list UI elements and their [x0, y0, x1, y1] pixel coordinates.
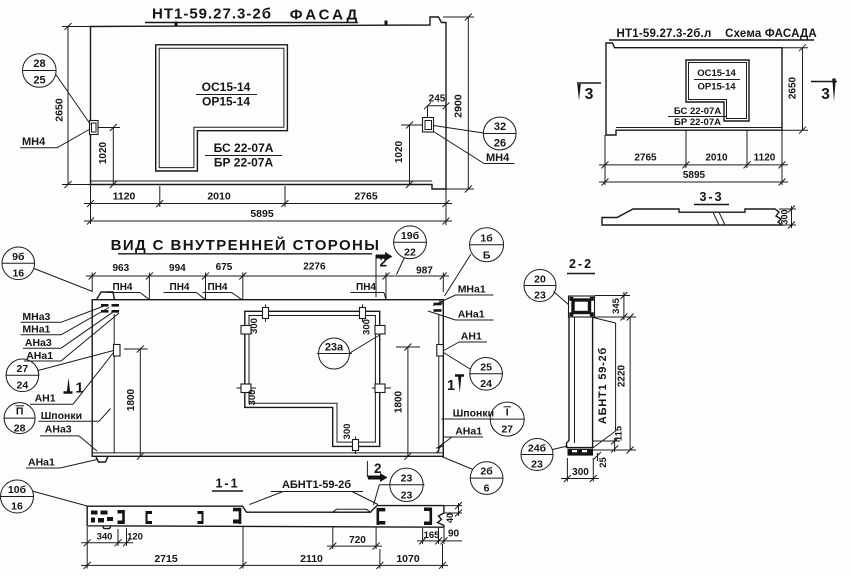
svg-text:НТ1-59.27.3-2б.л: НТ1-59.27.3-2б.л: [617, 28, 712, 40]
svg-text:АНа3: АНа3: [25, 337, 52, 349]
svg-text:675: 675: [216, 262, 233, 273]
svg-text:1б: 1б: [480, 233, 493, 245]
svg-text:300: 300: [362, 319, 373, 335]
svg-text:2765: 2765: [354, 191, 378, 203]
svg-text:2: 2: [380, 255, 388, 270]
svg-text:ОР15-14: ОР15-14: [697, 82, 736, 93]
svg-text:2900: 2900: [453, 94, 465, 118]
svg-text:24: 24: [480, 378, 492, 390]
svg-text:24б: 24б: [528, 443, 547, 455]
svg-text:ОС15-14: ОС15-14: [697, 68, 736, 79]
svg-text:1120: 1120: [113, 191, 136, 203]
svg-text:27: 27: [501, 424, 513, 436]
svg-text:23а: 23а: [325, 342, 344, 354]
svg-text:5895: 5895: [683, 170, 706, 181]
svg-text:120: 120: [127, 532, 143, 543]
svg-text:994: 994: [169, 263, 186, 274]
svg-text:23: 23: [531, 459, 543, 471]
svg-text:25: 25: [598, 457, 609, 468]
svg-text:24: 24: [17, 380, 29, 392]
svg-text:ВИД С ВНУТРЕННЕЙ СТОРОНЫ: ВИД С ВНУТРЕННЕЙ СТОРОНЫ: [111, 236, 381, 254]
svg-text:МН4: МН4: [22, 136, 46, 148]
svg-text:АНа1: АНа1: [26, 350, 53, 362]
svg-text:300: 300: [342, 424, 353, 440]
svg-text:2650: 2650: [54, 98, 66, 122]
svg-text:25: 25: [480, 362, 492, 374]
svg-text:МНа1: МНа1: [458, 284, 486, 296]
svg-text:1800: 1800: [126, 388, 137, 411]
svg-text:300: 300: [572, 467, 589, 478]
svg-text:16: 16: [11, 501, 23, 513]
svg-text:БР 22-07А: БР 22-07А: [214, 156, 274, 170]
svg-text:28: 28: [14, 423, 26, 435]
svg-text:АБНТ1 59-2б: АБНТ1 59-2б: [597, 347, 609, 424]
svg-text:ПН4: ПН4: [170, 282, 190, 293]
svg-text:ОС15-14: ОС15-14: [202, 80, 251, 94]
svg-text:2220: 2220: [617, 364, 628, 387]
svg-text:АНа1: АНа1: [455, 426, 482, 438]
svg-text:165: 165: [424, 530, 441, 541]
svg-text:300: 300: [247, 390, 258, 406]
svg-text:23: 23: [401, 490, 413, 502]
svg-text:АНа1: АНа1: [28, 457, 55, 469]
svg-text:2: 2: [374, 461, 382, 476]
svg-text:6: 6: [484, 483, 490, 495]
svg-text:2276: 2276: [303, 262, 326, 273]
svg-text:9б: 9б: [12, 251, 25, 263]
svg-text:ПН4: ПН4: [356, 282, 376, 293]
svg-text:340: 340: [97, 532, 113, 543]
svg-text:1: 1: [76, 381, 84, 397]
svg-text:ПН4: ПН4: [208, 282, 228, 293]
svg-text:345: 345: [611, 297, 622, 314]
svg-text:5895: 5895: [250, 208, 274, 220]
svg-text:32: 32: [494, 121, 506, 133]
svg-text:Схема ФАСАДА: Схема ФАСАДА: [725, 28, 817, 40]
svg-text:1-1: 1-1: [215, 477, 239, 491]
svg-text:2110: 2110: [300, 553, 323, 565]
svg-text:НТ1-59.27.3-2б: НТ1-59.27.3-2б: [152, 6, 272, 23]
svg-text:2б: 2б: [480, 466, 493, 478]
svg-text:АНа1: АНа1: [458, 309, 485, 321]
svg-text:3-3: 3-3: [699, 190, 723, 204]
svg-text:2715: 2715: [154, 553, 178, 565]
svg-text:1070: 1070: [396, 553, 420, 565]
svg-text:МН4: МН4: [486, 152, 510, 164]
svg-text:1800: 1800: [394, 390, 405, 413]
svg-text:АБНТ1-59-2б: АБНТ1-59-2б: [282, 479, 351, 491]
svg-text:25: 25: [33, 75, 45, 87]
svg-text:1: 1: [447, 378, 455, 394]
svg-text:22: 22: [404, 247, 416, 259]
svg-text:28: 28: [33, 58, 45, 70]
svg-text:245: 245: [429, 94, 446, 105]
svg-text:МНа3: МНа3: [22, 311, 50, 323]
svg-text:БС 22-07А: БС 22-07А: [674, 106, 722, 117]
svg-text:БР 22-07А: БР 22-07А: [674, 117, 721, 128]
svg-text:115: 115: [614, 425, 625, 441]
svg-text:П: П: [16, 406, 24, 418]
svg-text:I: I: [506, 407, 509, 419]
svg-text:40: 40: [445, 513, 455, 523]
svg-text:720: 720: [349, 535, 366, 546]
svg-text:АН1: АН1: [461, 331, 482, 343]
svg-text:3: 3: [585, 86, 594, 103]
svg-text:27: 27: [17, 363, 29, 375]
svg-text:16: 16: [12, 268, 24, 280]
svg-text:19б: 19б: [401, 230, 420, 242]
svg-text:300: 300: [780, 209, 790, 224]
svg-text:26: 26: [494, 138, 506, 150]
svg-text:Шпонки: Шпонки: [453, 408, 494, 420]
svg-text:3: 3: [821, 86, 830, 103]
svg-text:2650: 2650: [788, 76, 799, 99]
svg-text:Шпонки: Шпонки: [41, 410, 82, 422]
svg-text:963: 963: [112, 263, 129, 274]
svg-text:987: 987: [416, 266, 433, 277]
svg-text:10б: 10б: [8, 484, 27, 496]
svg-text:АНа3: АНа3: [45, 424, 72, 436]
svg-text:2765: 2765: [634, 153, 657, 164]
svg-text:1020: 1020: [394, 140, 405, 163]
svg-text:2-2: 2-2: [569, 257, 593, 271]
svg-text:1120: 1120: [754, 153, 776, 164]
svg-text:БС 22-07А: БС 22-07А: [214, 141, 274, 155]
svg-text:МНа1: МНа1: [22, 324, 50, 336]
svg-text:90: 90: [448, 529, 460, 540]
svg-text:23: 23: [534, 290, 546, 302]
svg-text:1020: 1020: [98, 141, 109, 164]
svg-text:ОР15-14: ОР15-14: [202, 95, 250, 109]
svg-text:АН1: АН1: [35, 393, 56, 405]
svg-text:2010: 2010: [705, 153, 728, 164]
svg-text:ФАСАД: ФАСАД: [290, 7, 360, 24]
svg-text:ПН4: ПН4: [113, 282, 133, 293]
svg-text:20: 20: [534, 274, 546, 286]
svg-text:Б: Б: [483, 250, 491, 262]
svg-text:2010: 2010: [207, 191, 231, 203]
svg-text:23: 23: [401, 473, 413, 485]
